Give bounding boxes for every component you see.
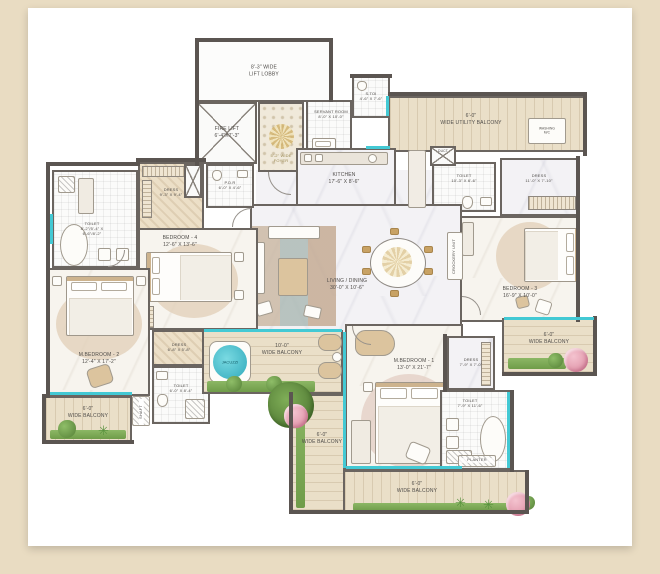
window-living-balcony — [204, 329, 342, 332]
toilet-mb2-label: TOILET 6'-0" X 8'-4" — [154, 384, 208, 394]
lounger-table — [332, 352, 342, 362]
balcony-right-label: 6'-0" WIDE BALCONY — [504, 332, 594, 345]
planter-box: PLANTER — [458, 455, 496, 467]
balcony-arm-flower-icon — [284, 404, 308, 428]
wall-segment — [289, 392, 293, 514]
balcony-left-label: 6'-0" WIDE BALCONY — [46, 406, 130, 419]
bedroom3-chair — [534, 298, 553, 316]
wall-segment — [350, 74, 392, 78]
toilet-mb1-label: TOILET 7'-9" X 11'-6" — [444, 399, 496, 409]
room-mbedroom2: M.BEDROOM - 2 12'-4" X 17'-2" — [48, 268, 150, 396]
balcony-bottom: 6'-0" WIDE BALCONY ✳ ✳ — [343, 470, 527, 512]
wall-segment — [576, 156, 580, 322]
living-coffee-table — [278, 258, 308, 296]
wall-segment — [46, 162, 140, 166]
bedroom4-bed — [146, 252, 232, 302]
wall-segment — [502, 372, 597, 376]
s-toi-wc — [357, 81, 367, 91]
toilet-bed3-wc — [462, 196, 473, 209]
window-mb2-balcony — [50, 392, 132, 395]
bedroom3-label: BEDROOM - 3 16'-9" X 10'-0" — [480, 286, 560, 299]
toilet-mb2-shower — [185, 399, 205, 419]
wall-segment — [46, 162, 50, 398]
balcony-right-flower-icon — [564, 348, 588, 372]
toilet-bed3-label: TOILET 10'-3" X 6'-6" — [434, 174, 494, 184]
planter-label: PLANTER — [459, 458, 495, 463]
room-living-dining: LIVING / DINING 30'-0" X 10'-6" — [250, 204, 462, 334]
lounger2 — [318, 362, 342, 379]
dress-bed3-label: DRESS 11'-0" X 7'-10" — [502, 174, 576, 184]
living-dining-label: LIVING / DINING 30'-0" X 10'-6" — [312, 278, 382, 291]
wall-segment — [388, 92, 587, 96]
window-kitchen — [366, 146, 390, 149]
floor-plan-stage: 8'-3" WIDE LIFT LOBBY FIRE LIFT 6'-4"X7'… — [0, 0, 660, 574]
wall-segment — [289, 510, 529, 514]
living-sofa-top — [268, 226, 320, 239]
dress-bed3-wardrobe — [528, 196, 576, 210]
window-toilet-mb1 — [507, 392, 510, 468]
balcony-utility: 6'-0" WIDE UTILITY BALCONY WASHING M/C — [388, 96, 585, 152]
dining-chair — [390, 228, 399, 235]
wall-segment — [583, 92, 587, 156]
kitchen-label: KITCHEN 17'-6" X 8'-6" — [304, 172, 384, 185]
wall-segment — [329, 38, 333, 102]
mbedroom2-label: M.BEDROOM - 2 12'-4" X 17'-2" — [50, 352, 148, 365]
room-lift-lobby: 8'-3" WIDE LIFT LOBBY — [197, 40, 331, 102]
shaft-box: SHAFT — [132, 396, 150, 426]
dress-mb2-label: DRESS 6'-8" X 5'-8" — [154, 343, 204, 353]
utility-balcony-label: 6'-0" WIDE UTILITY BALCONY — [416, 113, 526, 126]
window-stoi — [386, 96, 389, 116]
duct-shaft-kitchen: DUCT — [430, 146, 456, 166]
room-dress-bed3: DRESS 11'-0" X 7'-10" — [500, 158, 578, 216]
mbedroom1-desk — [351, 420, 371, 464]
balcony-middle: 10'-0" WIDE BALCONY JACUZZI — [202, 330, 343, 394]
toilet-left-label: TOILET 8'-2"/5'-4" X 6'-6"/8'-2" — [62, 222, 122, 236]
balcony-middle-label: 10'-0" WIDE BALCONY — [242, 343, 322, 356]
balcony-arm-label: 6'-0" WIDE BALCONY — [299, 432, 345, 445]
room-s-toi: S.TOI 4'-6" X 7'-6" — [352, 76, 390, 118]
kitchen-hob2 — [315, 154, 323, 162]
balcony-bottom-label: 6'-0" WIDE BALCONY — [367, 481, 467, 494]
toilet-mb1-bidet — [446, 436, 459, 449]
mbedroom2-nightstand2 — [136, 276, 146, 286]
room-dress-mb2: DRESS 6'-8" X 5'-8" — [152, 330, 206, 366]
window-mb1-left — [343, 332, 346, 468]
room-toilet-left: TOILET 8'-2"/5'-4" X 6'-6"/8'-2" — [52, 170, 138, 268]
toilet-left-shower — [58, 176, 75, 193]
duct-shaft-left — [184, 164, 202, 198]
duct-label: DUCT — [434, 149, 453, 153]
window-toilet-left — [50, 214, 53, 244]
dress-left-wardrobe2 — [142, 180, 152, 218]
pdr-label: P.D.R 6'-0" X 4'-6" — [208, 181, 252, 191]
balcony-right: 6'-0" WIDE BALCONY — [502, 318, 596, 374]
dining-chair — [362, 268, 371, 275]
window-bed3-balcony — [504, 317, 594, 320]
bedroom4-label: BEDROOM - 4 12'-6" X 13'-6" — [144, 235, 216, 248]
room-pdr: P.D.R 6'-0" X 4'-6" — [206, 164, 254, 208]
room-bedroom4: BEDROOM - 4 12'-6" X 13'-6" — [138, 228, 258, 330]
wall-segment — [443, 334, 447, 392]
kitchen-hob — [304, 154, 312, 162]
foyer-chandelier-icon — [269, 124, 294, 149]
toilet-mb2-basin — [156, 371, 168, 380]
mbedroom1-nightstand — [363, 382, 373, 392]
wall-segment — [195, 38, 199, 166]
balcony-left: 6'-0" WIDE BALCONY ✳ — [44, 396, 132, 442]
dining-chair — [390, 290, 399, 297]
bedroom3-bed — [524, 228, 580, 282]
toilet-bed3-basin — [480, 197, 492, 206]
jacuzzi-label: JACUZZI — [210, 360, 250, 365]
dining-chair — [424, 246, 433, 253]
toilet-left-vanity — [78, 178, 94, 214]
room-dress-mb1: DRESS 7'-9" X 7'-0" — [447, 336, 495, 390]
wall-segment — [42, 394, 46, 444]
bedroom3-desk — [462, 222, 474, 256]
pdr-wc — [212, 170, 222, 181]
room-fire-lift: FIRE LIFT 6'-4"X7'-3" — [197, 102, 257, 164]
kitchen-sink — [368, 154, 377, 163]
mbedroom2-bed — [66, 276, 134, 336]
washing-machine-label: WASHING M/C — [533, 127, 562, 135]
toilet-mb1-wc — [446, 418, 459, 431]
toilet-mb2-wc — [157, 394, 168, 407]
shaft-label: SHAFT — [139, 399, 144, 425]
dress-mb1-label: DRESS 7'-9" X 7'-0" — [449, 358, 493, 368]
wall-segment — [525, 470, 529, 514]
crockery-unit: CROCKERY UNIT — [447, 232, 463, 280]
s-toi-label: S.TOI 4'-6" X 7'-6" — [354, 92, 388, 102]
wall-segment — [136, 158, 206, 162]
dining-chair — [362, 246, 371, 253]
window-mb1-bottom — [346, 466, 462, 469]
pdr-basin — [237, 170, 248, 178]
wall-segment — [510, 390, 514, 472]
kitchen-tall-units — [408, 150, 426, 208]
bedroom4-nightstand — [234, 252, 244, 262]
washing-machine-box: WASHING M/C — [528, 118, 566, 144]
wall-segment — [593, 316, 597, 376]
mbedroom2-chair — [85, 363, 114, 389]
balcony-bottom-palm-icon: ✳ — [455, 496, 466, 509]
lift-lobby-label: 8'-3" WIDE LIFT LOBBY — [199, 65, 329, 78]
bedroom4-nightstand2 — [234, 290, 244, 300]
fire-lift-label: FIRE LIFT 6'-4"X7'-3" — [199, 126, 255, 139]
dining-chair — [424, 268, 433, 275]
floor-plan-page: { "labels": { "lift_lobby": "8'-3\" WIDE… — [0, 0, 660, 574]
crockery-unit-label: CROCKERY UNIT — [452, 236, 457, 278]
balcony-left-palm-icon: ✳ — [98, 424, 109, 437]
mbedroom2-nightstand — [52, 276, 62, 286]
wall-segment — [42, 440, 134, 444]
wall-segment — [195, 38, 333, 42]
